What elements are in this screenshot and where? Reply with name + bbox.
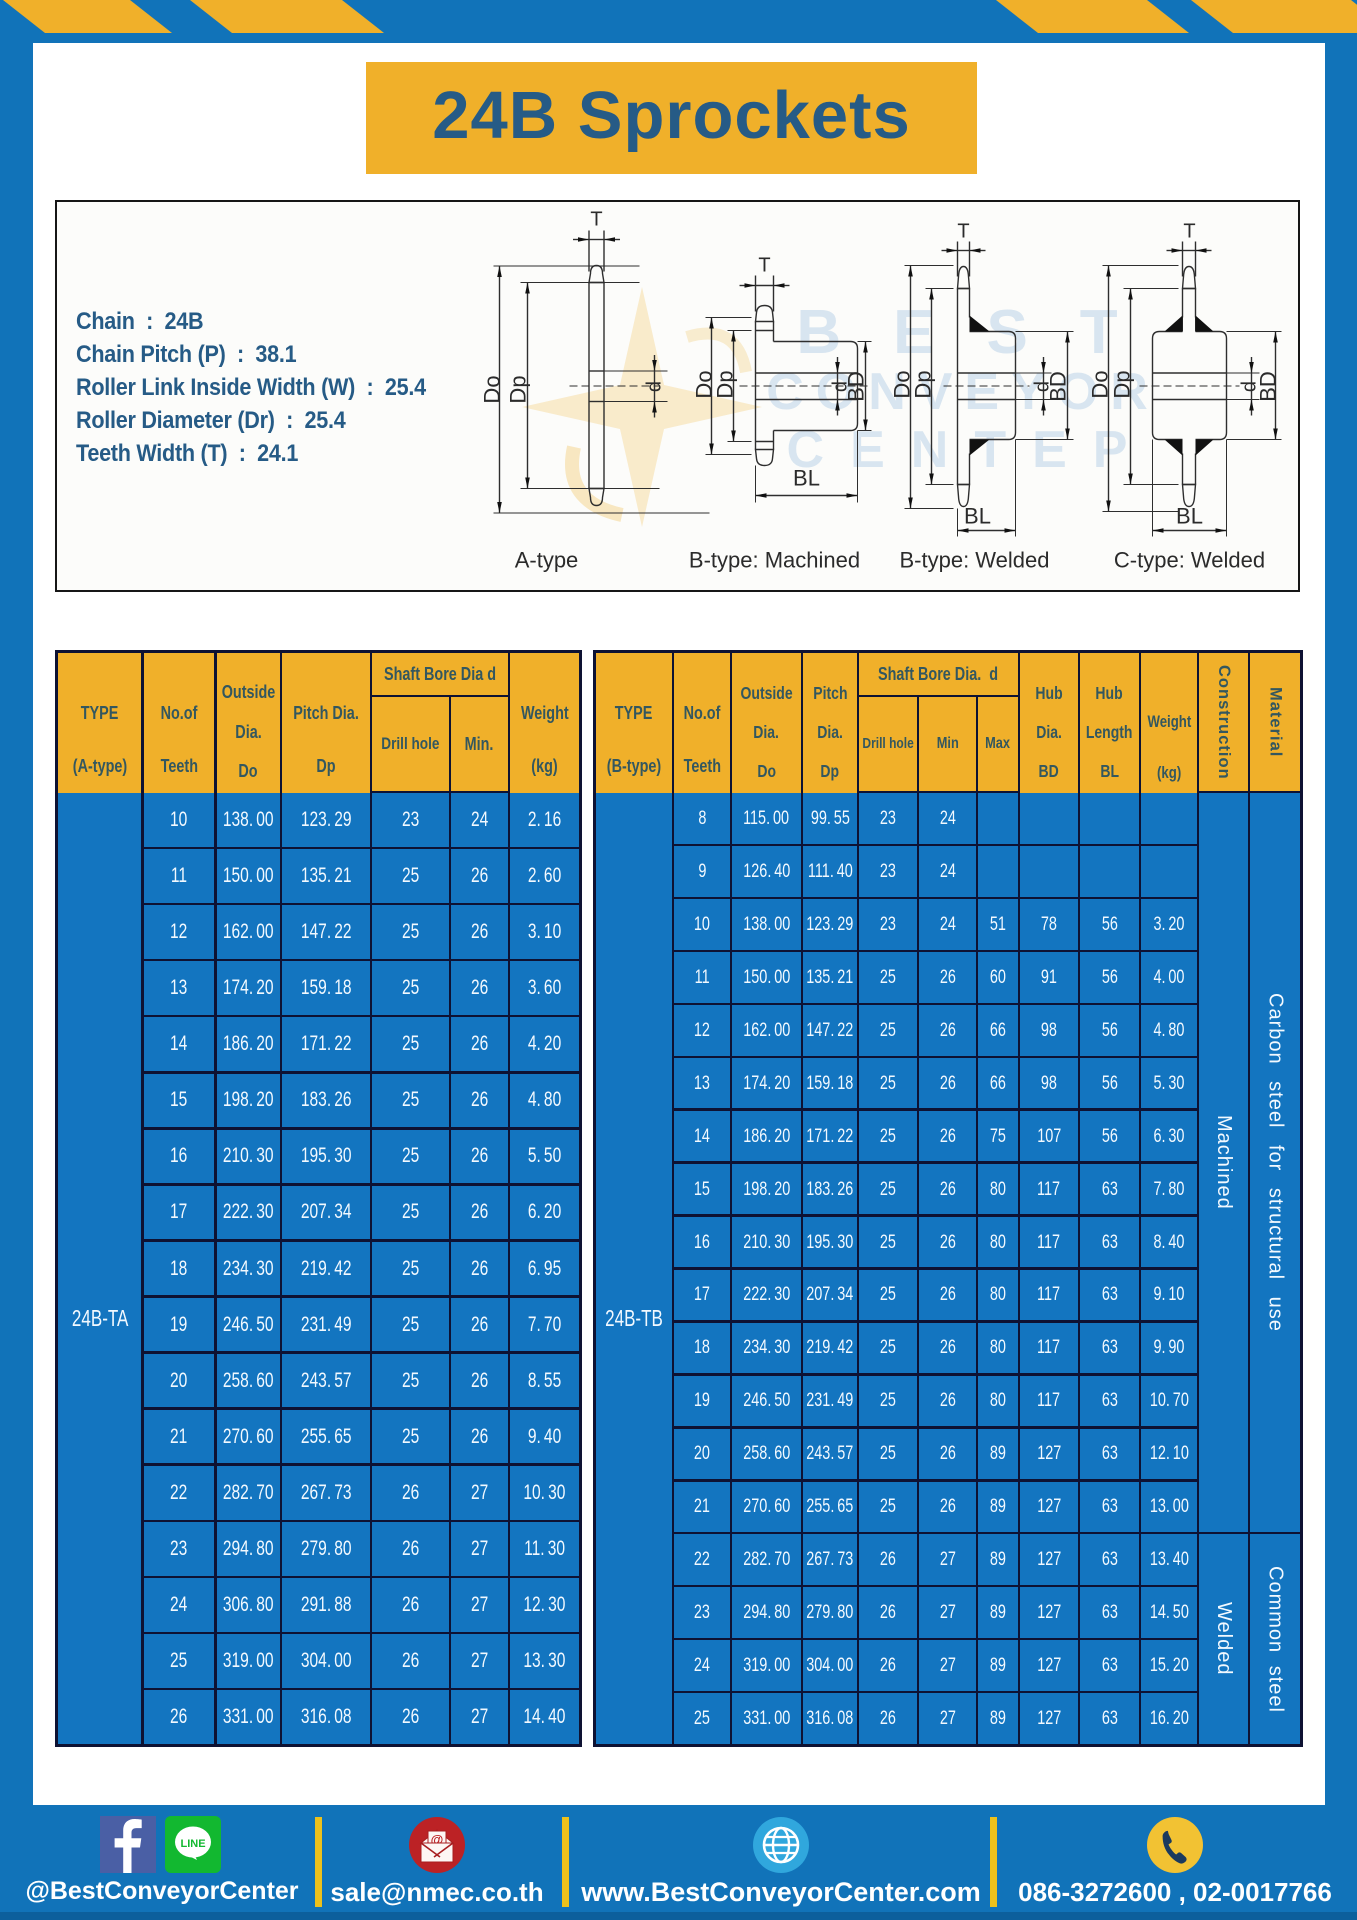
svg-text:BD: BD bbox=[1256, 371, 1281, 402]
svg-text:Do: Do bbox=[480, 375, 505, 403]
svg-text:BD: BD bbox=[1046, 371, 1071, 402]
svg-text:BD: BD bbox=[844, 371, 869, 402]
svg-text:Dp: Dp bbox=[911, 370, 936, 398]
svg-text:T: T bbox=[1183, 221, 1195, 243]
svg-text:B-type: Machined: B-type: Machined bbox=[689, 548, 860, 573]
svg-text:Dp: Dp bbox=[1110, 370, 1135, 398]
svg-text:B-type: Welded: B-type: Welded bbox=[899, 548, 1049, 573]
svg-text:BL: BL bbox=[793, 466, 820, 491]
svg-text:Dp: Dp bbox=[713, 370, 738, 398]
svg-text:BL: BL bbox=[964, 504, 991, 529]
svg-text:C-type: Welded: C-type: Welded bbox=[1114, 548, 1265, 573]
svg-text:BL: BL bbox=[1176, 504, 1203, 529]
svg-text:d: d bbox=[644, 381, 666, 392]
svg-text:LINE: LINE bbox=[180, 1838, 205, 1850]
svg-text:A-type: A-type bbox=[515, 548, 579, 573]
svg-text:T: T bbox=[590, 209, 602, 231]
svg-text:Dp: Dp bbox=[506, 375, 531, 403]
svg-text:T: T bbox=[758, 255, 770, 277]
svg-text:T: T bbox=[957, 221, 969, 243]
